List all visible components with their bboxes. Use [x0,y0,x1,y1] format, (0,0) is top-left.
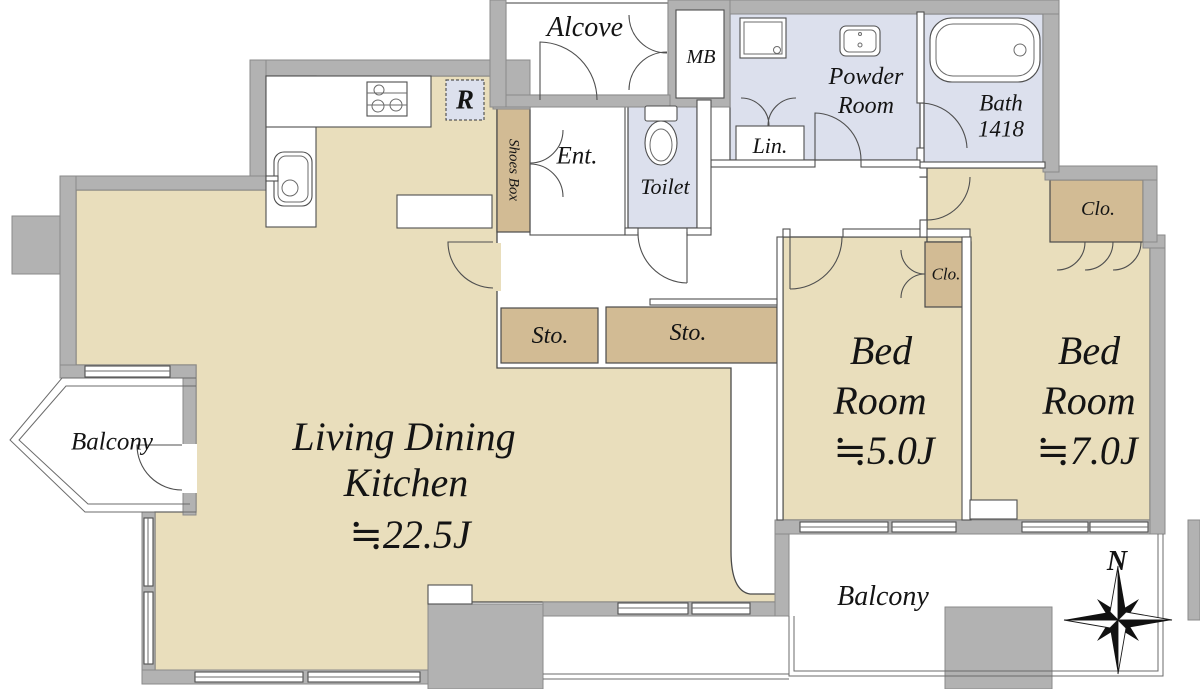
compass-rose [1064,566,1172,674]
label-bedroom5-size: ≒5.0J [833,431,934,471]
label-closet-7j: Clo. [1081,199,1115,219]
stove [367,82,407,116]
washer-pan [740,18,786,58]
label-bath: Bath [979,92,1022,115]
label-closet-5j: Clo. [932,266,961,283]
label-bedroom7-size: ≒7.0J [1036,431,1137,471]
label-ldk-line2: Kitchen [344,463,468,503]
bathtub [930,18,1040,82]
label-meter-box: MB [687,47,716,67]
label-bedroom5-line2: Room [833,381,926,421]
label-bedroom5-line1: Bed [850,331,912,371]
label-linen: Lin. [753,135,788,157]
label-powder-line1: Powder [829,65,904,89]
floor-plan: Alcove MB Powder Room Bath 1418 Lin. Toi… [0,0,1200,689]
label-storage-2: Sto. [670,321,707,345]
door-toilet [638,232,687,283]
storage-2-track [650,299,777,305]
label-ldk-line1: Living Dining [292,417,515,457]
label-bedroom7-line1: Bed [1058,331,1120,371]
label-compass-north: N [1107,548,1127,576]
label-toilet: Toilet [640,176,689,198]
pillar-notch [428,585,472,604]
label-bath-size: 1418 [978,118,1024,141]
toilet-fixture [645,106,677,165]
label-powder-line2: Room [838,94,894,118]
label-alcove: Alcove [547,14,623,42]
label-storage-1: Sto. [532,324,569,348]
label-ldk-size: ≒22.5J [349,515,470,555]
label-balcony-main: Balcony [837,583,929,611]
label-balcony-side: Balcony [71,430,153,455]
balcony-utility-block [945,607,1052,689]
pillar-column [970,500,1017,519]
kitchen-counter-bottom [397,195,492,228]
label-bedroom7-line2: Room [1042,381,1135,421]
label-entrance: Ent. [557,144,598,169]
label-shoes-box: Shoes Box [506,139,521,201]
label-refrigerator: R [456,87,474,114]
vanity-sink [840,26,880,56]
